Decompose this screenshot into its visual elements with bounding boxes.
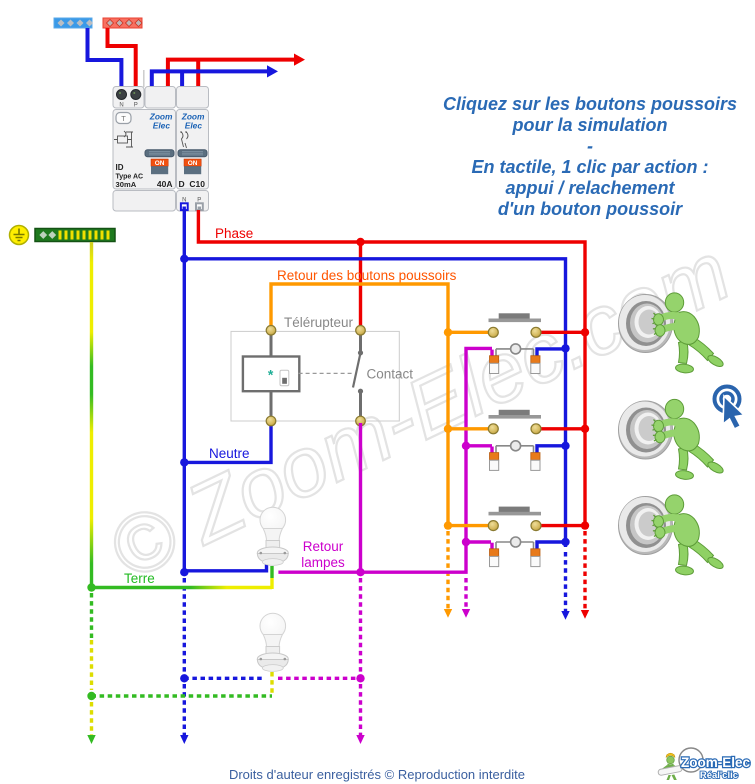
svg-text:d'un bouton poussoir: d'un bouton poussoir	[498, 199, 683, 219]
svg-text:C10: C10	[189, 179, 205, 189]
svg-text:Contact: Contact	[367, 367, 414, 382]
svg-text:40A: 40A	[157, 179, 173, 189]
svg-text:*: *	[268, 367, 274, 383]
svg-text:Cliquez sur les boutons pousso: Cliquez sur les boutons poussoirs	[443, 94, 737, 114]
svg-text:Retour: Retour	[303, 539, 344, 554]
svg-text:Neutre: Neutre	[209, 446, 250, 461]
svg-text:Réal'clic: Réal'clic	[700, 770, 738, 781]
svg-text:Retour des boutons poussoirs: Retour des boutons poussoirs	[277, 268, 457, 283]
svg-text:pour la simulation: pour la simulation	[511, 115, 667, 135]
svg-text:lampes: lampes	[301, 555, 345, 570]
svg-text:ID: ID	[116, 163, 124, 172]
svg-text:P: P	[134, 103, 138, 109]
svg-text:ON: ON	[155, 160, 165, 167]
svg-text:Droits d'auteur enregistrés ©: Droits d'auteur enregistrés © Reproducti…	[229, 767, 525, 782]
svg-text:Terre: Terre	[124, 571, 155, 586]
svg-text:30mA: 30mA	[116, 180, 137, 189]
svg-text:D: D	[179, 179, 185, 189]
svg-text:Elec: Elec	[185, 121, 203, 131]
svg-text:Zoom-Elec: Zoom-Elec	[681, 755, 751, 770]
svg-text:T: T	[121, 114, 126, 123]
svg-text:Télérupteur: Télérupteur	[284, 315, 354, 330]
svg-text:appui / relachement: appui / relachement	[505, 178, 675, 198]
svg-text:Phase: Phase	[215, 226, 253, 241]
svg-text:N: N	[119, 103, 123, 109]
svg-text:En tactile, 1 clic par action: En tactile, 1 clic par action :	[471, 157, 708, 177]
svg-text:Elec: Elec	[153, 121, 171, 131]
svg-text:ON: ON	[188, 160, 198, 167]
svg-text:-: -	[587, 136, 593, 156]
